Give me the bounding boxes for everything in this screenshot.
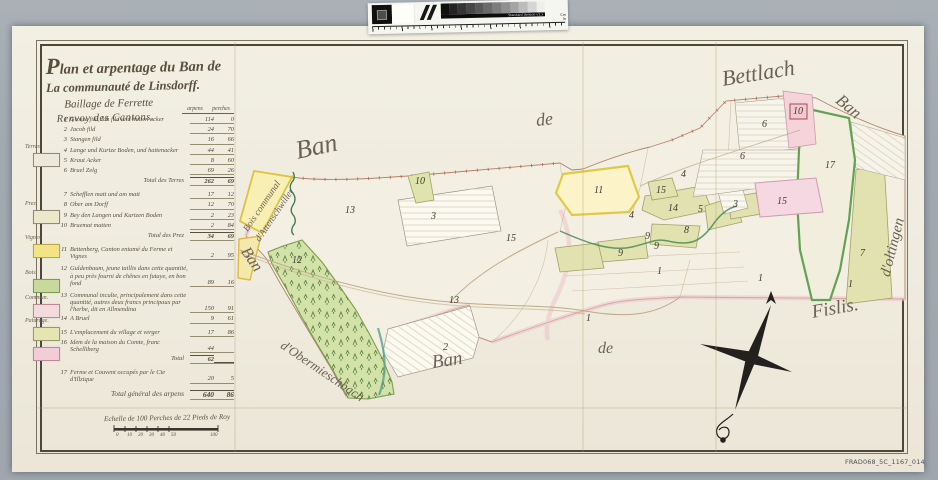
- row-perches: 69: [214, 177, 234, 186]
- legend-swatch: [33, 244, 60, 258]
- row-number: 1: [56, 116, 70, 124]
- col-arpens: arpens: [182, 106, 208, 112]
- row-perches: 60: [214, 157, 234, 165]
- gray-step: [510, 2, 519, 13]
- in-label: In: [560, 18, 566, 22]
- legend-row: 8Ober am Dorff1270: [56, 201, 234, 209]
- ruler-units: Cm In: [560, 14, 566, 22]
- parcel-number-8: 8: [684, 225, 689, 236]
- parcel-number-17: 17: [825, 160, 835, 171]
- legend-swatch-label: Bois.: [25, 270, 37, 276]
- legend-row: 11Bettenberg, Canton entamé du Ferme et …: [56, 246, 234, 260]
- row-arpens: 2: [190, 252, 214, 260]
- row-arpens: 2: [190, 222, 214, 230]
- row-perches: 95: [214, 252, 234, 260]
- title-line2: La communauté de Linsdorff.: [46, 77, 242, 96]
- compass-flourish: [717, 414, 733, 439]
- row-label: Bruel Zelg: [70, 167, 190, 175]
- gray-wedge-wrap: Standard Version v1.x: [441, 1, 546, 18]
- row-number: 17: [56, 369, 70, 383]
- parcel-number-1: 1: [848, 279, 853, 290]
- row-number: [56, 390, 70, 400]
- row-perches: 0: [214, 116, 234, 124]
- row-label: Guldenbaum, jeune taillis dans cette qua…: [70, 265, 190, 287]
- row-arpens: 9: [190, 315, 214, 323]
- row-label: Ferme et Couvent occupés par le Cte d'Il…: [70, 369, 190, 383]
- scale-number: 100: [210, 433, 218, 438]
- legend-total-row: Total des Prez3469: [56, 232, 234, 241]
- parcel-number-10: 10: [793, 106, 803, 117]
- compass-rose: [700, 291, 792, 443]
- parcel-number-6: 6: [740, 151, 745, 162]
- calibration-bar: Standard Version v1.x Cm In: [368, 0, 569, 34]
- row-number: 8: [56, 201, 70, 209]
- row-perches: 26: [214, 167, 234, 175]
- row-arpens: 16: [190, 136, 214, 144]
- parcel-number-15: 15: [656, 185, 666, 196]
- parcel-number-12: 12: [292, 255, 302, 266]
- scale-number: 30: [149, 433, 154, 438]
- row-perches: 16: [214, 279, 234, 287]
- parcel-number-11: 11: [594, 185, 603, 196]
- row-label: Total des Terres: [70, 177, 190, 186]
- legend-swatch: [33, 279, 60, 293]
- scale-number: 20: [138, 433, 143, 438]
- row-perches: 12: [214, 191, 234, 199]
- row-label: Stangen fild: [70, 136, 190, 144]
- row-perches: 84: [214, 222, 234, 230]
- parcel-number-10: 10: [415, 176, 425, 187]
- legend-row: 12Guldenbaum, jeune taillis dans cette q…: [56, 265, 234, 287]
- calibration-patches: Standard Version v1.x: [372, 1, 565, 24]
- row-label: Ober am Dorff: [70, 201, 190, 209]
- parcel-number-14: 14: [668, 203, 678, 214]
- legend-swatch: [33, 153, 60, 167]
- row-label: Communal inculte, principalement dans ce…: [70, 292, 190, 314]
- legend-row: 3Stangen fild1666: [56, 136, 234, 144]
- row-number: [56, 232, 70, 241]
- white-patch: [392, 4, 415, 24]
- row-arpens: 640: [190, 390, 214, 400]
- row-label: L'emplacement du village et verger: [70, 329, 190, 337]
- legend-swatch-label: Paturage.: [25, 318, 49, 324]
- row-perches: 61: [214, 315, 234, 323]
- row-perches: [214, 352, 234, 353]
- row-perches: 86: [214, 329, 234, 337]
- row-label: Jacob fild: [70, 126, 190, 134]
- row-arpens: 17: [190, 191, 214, 199]
- pink-parcel-15: [755, 178, 823, 217]
- legend-row: 16Idem de la maison du Comte, franc Sche…: [56, 339, 234, 353]
- row-arpens: 44: [190, 345, 214, 353]
- col-perches: perches: [208, 106, 234, 112]
- row-arpens: 262: [190, 177, 214, 186]
- parcel-number-1: 1: [657, 266, 662, 277]
- parcel-number-9: 9: [654, 241, 659, 252]
- legend-total-row: Total général des arpens64086: [56, 390, 234, 400]
- gray-step: [493, 2, 502, 13]
- parcel-number-9: 9: [618, 248, 623, 259]
- legend-column-headers: arpens perches: [182, 106, 234, 114]
- legend-row: 15L'emplacement du village et verger1786: [56, 329, 234, 337]
- row-arpens: 2: [190, 212, 214, 220]
- legend-swatch: [33, 210, 60, 224]
- parcel-number-15: 15: [506, 233, 516, 244]
- legend-row: 17Ferme et Couvent occupés par le Cte d'…: [56, 369, 234, 383]
- legend-row: 4Lange und Kurtze Boden, und hattenacker…: [56, 147, 234, 155]
- legend-row: 5Kraut Acker860: [56, 157, 234, 165]
- parcel-number-13: 13: [345, 205, 355, 216]
- map-label-de: de: [598, 340, 613, 358]
- row-perches: 91: [214, 305, 234, 313]
- legend-swatch-label: Vignes.: [25, 235, 42, 241]
- row-arpens: 150: [190, 305, 214, 313]
- gray-step: [475, 3, 484, 14]
- scale-bar: [114, 425, 218, 432]
- legend-row: 6Bruel Zelg6926: [56, 167, 234, 175]
- row-label: Bettenberg, Canton entamé du Ferme et Vi…: [70, 246, 190, 260]
- legend-total-row: Total des Terres26269: [56, 177, 234, 186]
- row-label: Total: [70, 355, 190, 364]
- legend-total-row: Total62: [56, 355, 234, 364]
- parcel-number-13: 13: [449, 295, 459, 306]
- row-perches: 70: [214, 126, 234, 134]
- parcel-number-4: 4: [629, 210, 634, 221]
- legend-swatch: [33, 304, 60, 318]
- parcel-number-9: 9: [645, 231, 650, 242]
- parcel-number-3: 3: [733, 199, 738, 210]
- parcel-number-5: 5: [698, 204, 703, 215]
- row-arpens: 44: [190, 147, 214, 155]
- row-label: A Bruel: [70, 315, 190, 323]
- row-arpens: 89: [190, 279, 214, 287]
- row-label: Total des Prez: [70, 232, 190, 241]
- legend-row: 13Communal inculte, principalement dans …: [56, 292, 234, 314]
- parcel-number-7: 7: [860, 248, 865, 259]
- row-number: [56, 177, 70, 186]
- row-arpens: 24: [190, 126, 214, 134]
- row-perches: [214, 362, 234, 364]
- gray-step: [501, 2, 510, 13]
- scale-number: 50: [171, 433, 176, 438]
- parcel-number-6: 6: [762, 119, 767, 130]
- legend-swatch-label: Prez.: [25, 201, 37, 207]
- row-number: 6: [56, 167, 70, 175]
- legend-swatch: [33, 327, 60, 341]
- gray-step: [528, 1, 537, 12]
- legend-row: 9Bey den Langen und Kurtzen Boden223: [56, 212, 234, 220]
- scale-number: 0: [116, 433, 119, 438]
- row-number: 2: [56, 126, 70, 134]
- black-patch: [372, 5, 392, 24]
- legend-swatch-label: Commun.: [25, 295, 48, 301]
- row-arpens: 17: [190, 329, 214, 337]
- parcel-number-2: 2: [443, 342, 448, 353]
- legend-row: 7Schefflen matt und am matt1712: [56, 191, 234, 199]
- row-perches: 86: [214, 390, 234, 400]
- legend-row: 10Bruemat matten284: [56, 222, 234, 230]
- parcel-number-1: 1: [758, 273, 763, 284]
- row-label: Total général des arpens: [70, 390, 190, 400]
- row-label: Bey den Langen und Kurtzen Boden: [70, 212, 190, 220]
- title-line1: Plan et arpentage du Ban de: [45, 50, 242, 80]
- row-perches: 5: [214, 375, 234, 383]
- row-label: Schefflen matt und am matt: [70, 191, 190, 199]
- gray-step: [449, 3, 458, 14]
- scale-number: 40: [160, 433, 165, 438]
- legend-swatch: [33, 347, 60, 361]
- row-label: Lange und Kurtze Boden, und hattenacker: [70, 147, 190, 155]
- map-label-de: de: [535, 108, 554, 131]
- legend-table: 1Grosse fild, loh fild und hutten acker1…: [56, 114, 234, 400]
- gray-step: [484, 2, 493, 13]
- parcel-number-4: 4: [681, 169, 686, 180]
- row-number: 7: [56, 191, 70, 199]
- gray-step: [458, 3, 467, 14]
- legend-row: 1Grosse fild, loh fild und hutten acker1…: [56, 116, 234, 124]
- row-perches: 41: [214, 147, 234, 155]
- archive-reference: FRAD068_5C_1167_014: [845, 458, 925, 466]
- scale-number: 10: [127, 433, 132, 438]
- row-label: Grosse fild, loh fild und hutten acker: [70, 116, 190, 124]
- row-perches: 66: [214, 136, 234, 144]
- scanned-cadastral-map: Plan et arpentage du Ban de La communaut…: [0, 0, 938, 480]
- row-label: Idem de la maison du Comte, franc Schell…: [70, 339, 190, 353]
- gray-step: [441, 3, 450, 14]
- row-arpens: 34: [190, 232, 214, 241]
- row-arpens: 8: [190, 157, 214, 165]
- row-number: 3: [56, 136, 70, 144]
- row-label: Bruemat matten: [70, 222, 190, 230]
- gray-step: [519, 2, 528, 13]
- gray-step: [467, 3, 476, 14]
- black-patch-inner: [377, 9, 387, 19]
- row-arpens: 114: [190, 116, 214, 124]
- row-label: Kraut Acker: [70, 157, 190, 165]
- row-arpens: 12: [190, 201, 214, 209]
- row-perches: 70: [214, 201, 234, 209]
- row-perches: 69: [214, 232, 234, 241]
- row-perches: 23: [214, 212, 234, 220]
- legend-swatch-label: Terres.: [25, 144, 41, 150]
- legend-row: 14A Bruel961: [56, 315, 234, 323]
- parcel-number-15: 15: [777, 196, 787, 207]
- row-arpens: 69: [190, 167, 214, 175]
- gray-step: [536, 1, 545, 12]
- row-arpens: 62: [190, 355, 214, 364]
- parcel-number-1: 1: [586, 313, 591, 324]
- parcel-number-3: 3: [431, 211, 436, 222]
- row-arpens: 20: [190, 375, 214, 383]
- legend-row: 2Jacob fild2470: [56, 126, 234, 134]
